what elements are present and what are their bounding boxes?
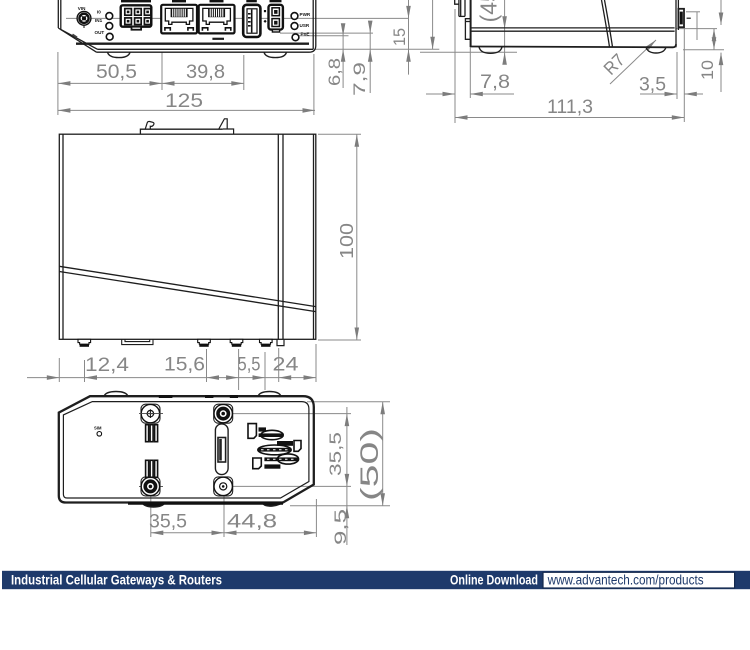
svg-text:IN1: IN1 <box>95 18 103 23</box>
svg-text:9,5: 9,5 <box>331 509 350 545</box>
svg-text:35,5: 35,5 <box>149 512 187 533</box>
svg-text:100: 100 <box>337 223 357 259</box>
svg-text:Industrial Cellular Gateways &: Industrial Cellular Gateways & Routers <box>11 571 222 587</box>
svg-text:125: 125 <box>165 91 203 112</box>
svg-text:USR: USR <box>300 23 310 28</box>
svg-text:35,5: 35,5 <box>326 432 345 476</box>
svg-text:OUT: OUT <box>95 30 105 35</box>
svg-text:44,8: 44,8 <box>227 512 277 533</box>
svg-text:24: 24 <box>273 355 300 376</box>
svg-text:PoE: PoE <box>301 32 310 37</box>
svg-text:PWR: PWR <box>300 12 311 17</box>
svg-text:10: 10 <box>698 60 717 80</box>
svg-text:12,4: 12,4 <box>85 355 130 376</box>
svg-text:VIN: VIN <box>78 6 86 11</box>
svg-text:5,5: 5,5 <box>238 355 261 376</box>
svg-text:50,5: 50,5 <box>96 62 137 83</box>
svg-text:111,3: 111,3 <box>547 97 593 118</box>
svg-text:I0: I0 <box>97 10 101 15</box>
svg-text:39,8: 39,8 <box>186 62 225 83</box>
svg-text:SIM: SIM <box>94 426 102 431</box>
svg-text:6,8: 6,8 <box>325 58 344 86</box>
svg-text:Online Download: Online Download <box>450 571 538 587</box>
svg-text:(45): (45) <box>476 0 502 22</box>
svg-text:7,9: 7,9 <box>350 62 369 96</box>
svg-text:7,8: 7,8 <box>480 72 510 93</box>
svg-text:15,6: 15,6 <box>164 355 205 376</box>
svg-text:(50): (50) <box>356 428 384 501</box>
svg-text:www.advantech.com/products: www.advantech.com/products <box>547 573 704 588</box>
svg-text:15: 15 <box>390 28 409 46</box>
svg-text:3,5: 3,5 <box>639 75 666 96</box>
